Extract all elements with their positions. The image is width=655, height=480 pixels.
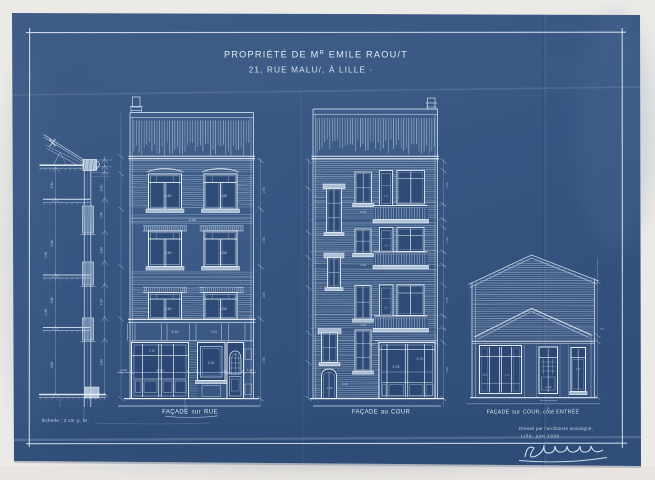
svg-text:21, RUE MALU/, À LILLE ·: 21, RUE MALU/, À LILLE · [249,65,374,75]
svg-text:0.90: 0.90 [121,368,127,372]
svg-text:2.70: 2.70 [417,357,424,361]
svg-text:1.0: 1.0 [384,193,389,197]
svg-text:1.50: 1.50 [220,251,227,255]
svg-text:2.8: 2.8 [600,327,605,331]
svg-text:2.80: 2.80 [445,297,449,303]
svg-text:2.80: 2.80 [262,292,266,298]
svg-text:2.60: 2.60 [342,382,348,386]
svg-text:2.76: 2.76 [393,365,400,369]
svg-text:Échelle : 2 cm p. M .: Échelle : 2 cm p. M . [42,417,90,423]
svg-text:2.60: 2.60 [100,247,104,254]
svg-text:2.60: 2.60 [100,299,104,306]
svg-text:1.0: 1.0 [384,305,389,309]
svg-text:2.60: 2.60 [189,218,196,222]
svg-text:2.10: 2.10 [545,385,551,389]
svg-text:3.60: 3.60 [100,359,104,366]
svg-text:2.80: 2.80 [50,240,54,247]
svg-text:2.80: 2.80 [50,297,54,304]
svg-text:3.1: 3.1 [483,373,488,377]
svg-text:2.80: 2.80 [262,187,266,193]
svg-text:1.0: 1.0 [384,244,389,248]
svg-text:1.50: 1.50 [165,194,172,198]
svg-text:0.25: 0.25 [211,330,218,334]
svg-text:1.06: 1.06 [247,368,253,372]
svg-text:2.60: 2.60 [360,323,366,327]
svg-text:2.80: 2.80 [445,237,449,243]
svg-text:2.60: 2.60 [100,185,104,192]
svg-text:FAÇADE sur RUE: FAÇADE sur RUE [162,410,218,416]
svg-text:2.80: 2.80 [262,357,266,363]
svg-text:1.30: 1.30 [149,349,156,353]
svg-text:1.50: 1.50 [165,307,172,311]
svg-text:0.25: 0.25 [369,342,375,346]
svg-text:3.85: 3.85 [50,362,54,369]
svg-text:1.50: 1.50 [220,307,227,311]
svg-text:1.0: 1.0 [576,367,581,371]
svg-text:1.50: 1.50 [165,251,172,255]
svg-text:PROPRIÉTÉ DE MR EMILE RAOU/T: PROPRIÉTÉ DE MR EMILE RAOU/T [224,50,408,60]
svg-text:2.80: 2.80 [262,237,266,243]
svg-text:0.40: 0.40 [100,212,104,219]
svg-text:1.00: 1.00 [326,386,332,390]
svg-text:FAÇADE au COUR: FAÇADE au COUR [352,410,411,416]
svg-text:0.35: 0.35 [44,309,48,316]
svg-text:4.30: 4.30 [172,330,179,334]
svg-text:2.80: 2.80 [445,182,449,188]
svg-text:2.80: 2.80 [445,367,449,373]
svg-text:2.60: 2.60 [360,263,366,267]
svg-text:2.80: 2.80 [50,182,54,189]
svg-text:2.60: 2.60 [360,210,366,214]
svg-text:2.10: 2.10 [208,361,215,365]
svg-text:Lille, juin 1920 .: Lille, juin 1920 . [521,434,563,440]
svg-text:1.0: 1.0 [505,373,510,377]
svg-text:0.35: 0.35 [44,252,48,259]
svg-text:1.50: 1.50 [220,194,227,198]
svg-text:FAÇADE sur COUR, côté ENTRÉE: FAÇADE sur COUR, côté ENTRÉÉ [487,409,580,416]
svg-text:Dressé par l’architecte soussi: Dressé par l’architecte soussigné, [519,426,593,431]
